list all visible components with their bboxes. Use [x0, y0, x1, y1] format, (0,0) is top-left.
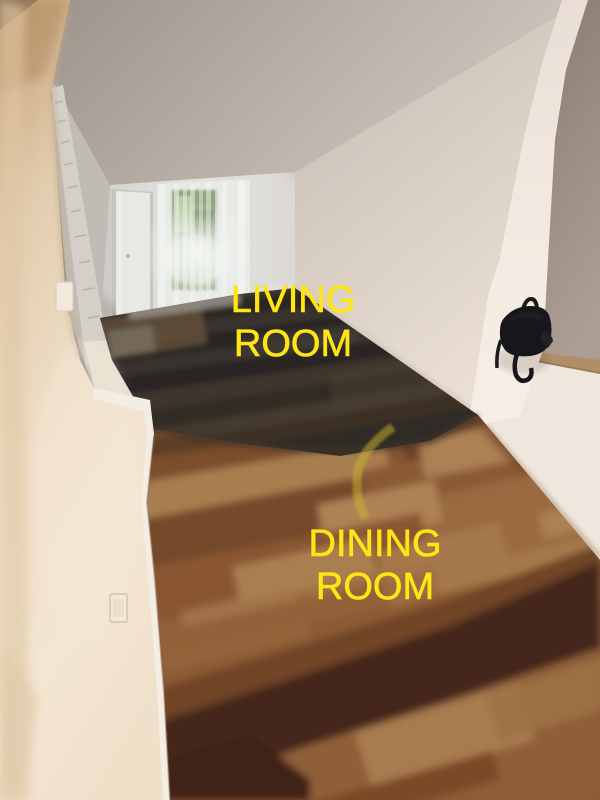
svg-text:DINING: DINING	[309, 523, 442, 565]
svg-text:ROOM: ROOM	[234, 323, 352, 365]
svg-text:LIVING: LIVING	[231, 279, 356, 321]
svg-text:ROOM: ROOM	[316, 566, 434, 608]
